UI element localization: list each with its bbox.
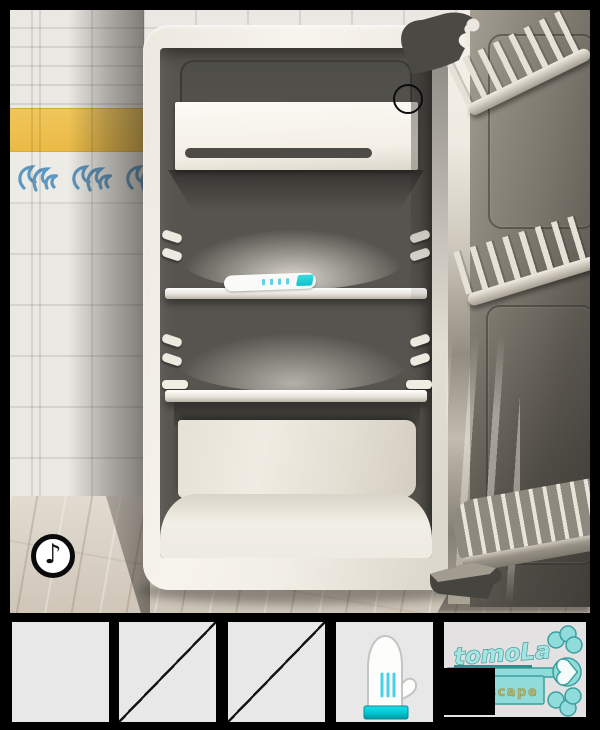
door-hinge-bottom — [428, 556, 506, 604]
tube-cyan-band — [296, 274, 314, 286]
freezer-shadow — [168, 170, 424, 212]
music-toggle-button[interactable]: ♪ — [31, 534, 75, 578]
oven-mitt-icon — [336, 622, 433, 722]
logo-title: tomoLa — [453, 638, 551, 671]
freezer-handle-slot — [185, 148, 372, 158]
freezer-door[interactable] — [175, 102, 418, 170]
fridge-shadow-on-wall — [68, 10, 144, 496]
circle-hotspot[interactable] — [393, 84, 423, 114]
tube-label-marks — [262, 278, 290, 285]
shelf-support — [406, 380, 432, 389]
refrigerator[interactable] — [143, 25, 458, 590]
door-hinge-top — [398, 10, 486, 78]
inventory-bar: tomoLa escape — [0, 613, 600, 730]
shelf-peg — [161, 229, 183, 244]
interior-light-lower — [178, 334, 408, 392]
shelf-support — [162, 380, 188, 389]
shelf-peg — [161, 333, 183, 348]
shelf-peg — [409, 352, 431, 367]
crisper-drawer[interactable] — [178, 420, 416, 498]
black-cover-square — [444, 668, 495, 715]
escape-game-screen: ♪ — [0, 0, 600, 730]
shelf-peg — [161, 352, 183, 367]
shelf-peg — [161, 247, 183, 262]
fridge-interior — [160, 48, 432, 558]
inventory-slot-1[interactable] — [12, 622, 109, 722]
fridge-floor — [160, 494, 432, 558]
inventory-slot-2[interactable] — [119, 622, 216, 722]
music-note-icon: ♪ — [44, 541, 61, 568]
inventory-slot-4-oven-mitt[interactable] — [336, 622, 433, 722]
room-scene: ♪ — [10, 10, 590, 613]
tube-item[interactable] — [224, 272, 317, 291]
tomola-logo-panel: tomoLa escape — [444, 622, 586, 717]
fridge-shelf-lower[interactable] — [165, 390, 427, 402]
fridge-shelf-upper[interactable] — [165, 288, 427, 299]
inventory-slot-3[interactable] — [228, 622, 325, 722]
